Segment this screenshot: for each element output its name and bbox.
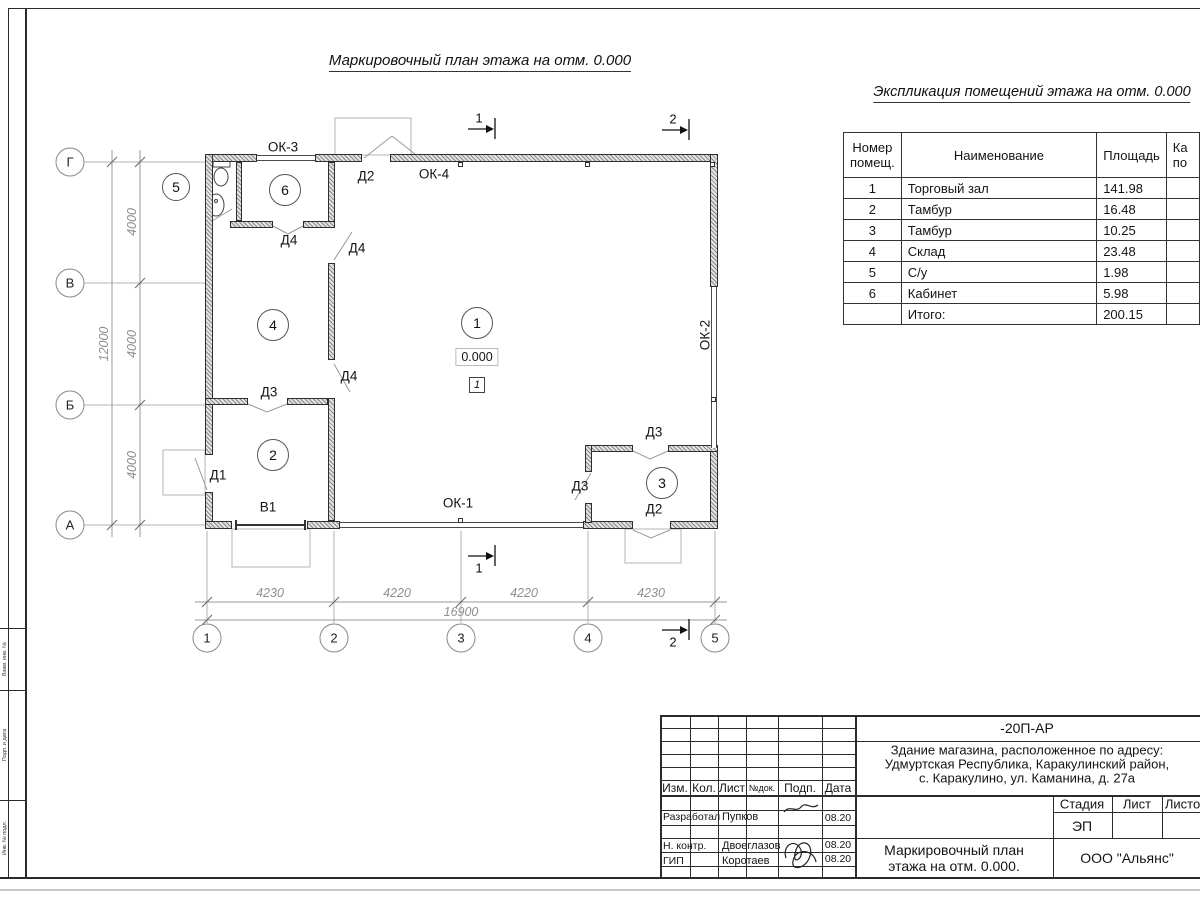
pier-mark (458, 162, 463, 167)
drawing-name: этажа на отм. 0.000. (888, 858, 1020, 874)
stamp-date: 08.20 (825, 839, 851, 851)
wall (307, 521, 340, 529)
axis-circle-1: 1 (193, 624, 222, 653)
stamp-date: 08.20 (825, 812, 851, 824)
window-label-ok1: ОК-1 (443, 496, 473, 511)
wall (328, 398, 335, 521)
axis-circle-2: 2 (320, 624, 349, 653)
address-line: Здание магазина, расположенное по адресу… (891, 743, 1163, 758)
drawing-name: Маркировочный план (884, 842, 1024, 858)
sheets-label: Листов (1165, 797, 1200, 812)
doc-code: -20П-АР (1000, 720, 1054, 736)
wall (585, 445, 633, 452)
door-label-d4: Д4 (341, 369, 358, 384)
stamp-name: Двоеглазов (722, 840, 780, 852)
wall (205, 154, 213, 455)
axis-circle-g: Г (56, 148, 85, 177)
drawing-sheet: Взам. инв. № Подп. и дата Инв. № подл. М… (0, 0, 1200, 900)
room-circle-2: 2 (257, 439, 289, 471)
axis-circle-v: В (56, 269, 85, 298)
stamp-role: ГИП (663, 855, 684, 867)
level-mark: 0.000 (455, 348, 498, 366)
dim-left-3: 4000 (125, 451, 139, 479)
wall (205, 521, 232, 529)
dim-bottom-3: 4220 (510, 586, 538, 600)
dim-bottom-1: 4230 (256, 586, 284, 600)
stamp-role: Н. контр. (663, 840, 706, 852)
door-label-d2: Д2 (646, 502, 663, 517)
dim-bottom-2: 4220 (383, 586, 411, 600)
window-label-ok3: ОК-3 (268, 140, 298, 155)
table-row: 5С/у1.98 (844, 262, 1200, 283)
address-line: Удмуртская Республика, Каракулинский рай… (885, 757, 1169, 772)
door-label-d3: Д3 (646, 425, 663, 440)
dim-left-1: 4000 (125, 208, 139, 236)
col-area: Площадь (1097, 133, 1167, 178)
axis-circle-3: 3 (447, 624, 476, 653)
sheet-label: Лист (1123, 797, 1151, 812)
address-line: с. Каракулино, ул. Каманина, д. 27а (919, 771, 1135, 786)
stage-value: ЭП (1072, 818, 1092, 834)
window-label-ok2: ОК-2 (698, 320, 713, 350)
wall (670, 521, 718, 529)
stamp-name: Коротаев (722, 855, 770, 867)
company-name: ООО "Альянс" (1080, 850, 1174, 866)
wall (303, 221, 335, 228)
door-label-d4: Д4 (349, 241, 366, 256)
wall (328, 162, 335, 222)
table-row: 6Кабинет5.98 (844, 283, 1200, 304)
door-label-d1: Д1 (210, 468, 227, 483)
section-mark-2: 2 (669, 112, 676, 127)
room-circle-5: 5 (162, 173, 190, 201)
axis-circle-b: Б (56, 391, 85, 420)
wall (287, 398, 328, 405)
pier-mark (458, 518, 463, 523)
wall (315, 154, 362, 162)
col-list: Лист (719, 781, 745, 795)
room-circle-1: 1 (461, 307, 493, 339)
col-name: Наименование (901, 133, 1096, 178)
wall (390, 154, 715, 162)
wall (710, 448, 718, 529)
dim-total-left: 12000 (97, 327, 111, 362)
table-row: 3Тамбур10.25 (844, 220, 1200, 241)
window-ok2 (711, 287, 717, 448)
window-ok3 (257, 155, 315, 161)
table-header-row: Номер помещ. Наименование Площадь Ка по (844, 133, 1200, 178)
dim-total-bottom: 16900 (444, 605, 479, 619)
pier-mark (711, 397, 716, 402)
room-circle-3: 3 (646, 467, 678, 499)
window-label-ok4: ОК-4 (419, 167, 449, 182)
room-circle-4: 4 (257, 309, 289, 341)
toilet-icon (213, 161, 230, 186)
wall (230, 221, 273, 228)
wall (585, 445, 592, 472)
door-label-d4: Д4 (281, 233, 298, 248)
col-izm: Изм. (662, 781, 688, 795)
table-row: 2Тамбур16.48 (844, 199, 1200, 220)
wall (710, 154, 718, 287)
pier-mark (710, 162, 715, 167)
door-label-d3: Д3 (572, 479, 589, 494)
room-circle-6: 6 (269, 174, 301, 206)
stamp-role: Разработал (663, 811, 720, 823)
table-row: 1Торговый зал141.98 (844, 178, 1200, 199)
dim-bottom-4: 4230 (637, 586, 665, 600)
wall (236, 162, 242, 221)
floor-type-mark: 1 (469, 377, 485, 393)
wall (205, 398, 248, 405)
col-kol: Кол. (692, 781, 716, 795)
table-row: Итого:200.15 (844, 304, 1200, 325)
gate-label-v1: В1 (260, 500, 277, 515)
axis-circle-4: 4 (574, 624, 603, 653)
col-num: Номер (852, 140, 892, 155)
section-mark-1: 1 (475, 111, 482, 126)
wall (328, 263, 335, 360)
signature-scribbles (780, 798, 822, 876)
door-label-d2: Д2 (358, 169, 375, 184)
col-cat: Ка (1173, 140, 1188, 155)
pier-mark (585, 162, 590, 167)
stamp-date: 08.20 (825, 853, 851, 865)
axis-circle-a: А (56, 511, 85, 540)
wall (585, 503, 592, 523)
door-label-d3: Д3 (261, 385, 278, 400)
explication-table: Номер помещ. Наименование Площадь Ка по … (843, 132, 1200, 325)
axis-circle-5: 5 (701, 624, 730, 653)
col-podp: Подп. (784, 781, 816, 795)
dim-left-2: 4000 (125, 330, 139, 358)
stamp-name: Пупков (722, 811, 758, 823)
section-mark-1: 1 (475, 561, 482, 576)
col-data: Дата (825, 781, 852, 795)
section-mark-2: 2 (669, 635, 676, 650)
table-row: 4Склад23.48 (844, 241, 1200, 262)
col-ndok: №док. (749, 783, 775, 793)
stage-label: Стадия (1060, 797, 1104, 812)
